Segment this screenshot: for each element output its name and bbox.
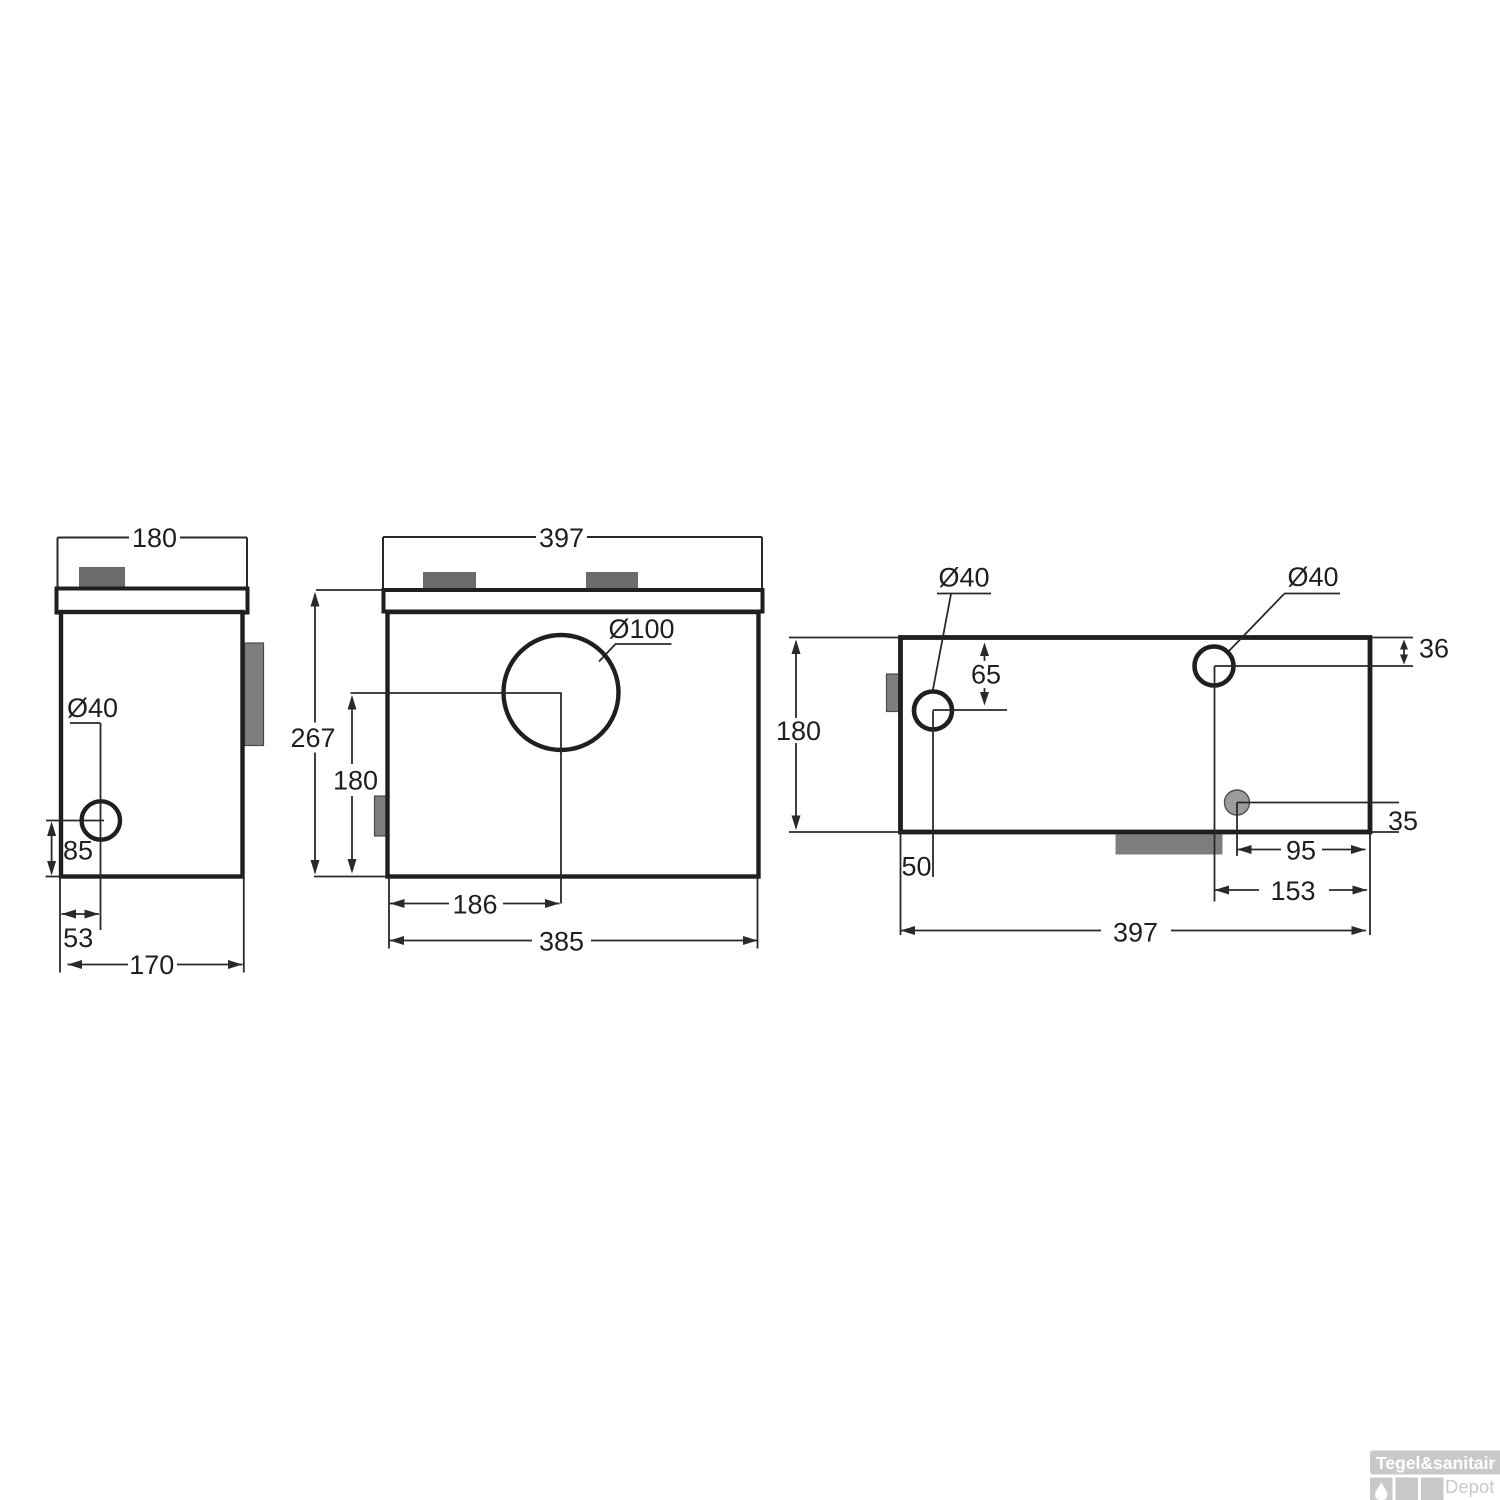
svg-text:Depot: Depot — [1445, 1476, 1494, 1497]
svg-text:Ø40: Ø40 — [1287, 562, 1338, 592]
svg-text:50: 50 — [901, 852, 931, 882]
svg-text:36: 36 — [1419, 634, 1449, 664]
svg-text:65: 65 — [971, 660, 1001, 690]
svg-text:397: 397 — [1113, 918, 1158, 948]
svg-text:Tegel&sanitair: Tegel&sanitair — [1376, 1453, 1495, 1473]
svg-text:397: 397 — [539, 523, 584, 553]
svg-text:180: 180 — [776, 716, 821, 746]
svg-text:153: 153 — [1270, 876, 1315, 906]
svg-text:Ø100: Ø100 — [608, 614, 674, 644]
svg-text:170: 170 — [129, 950, 174, 980]
svg-text:95: 95 — [1286, 836, 1316, 866]
svg-text:35: 35 — [1388, 806, 1418, 836]
svg-text:85: 85 — [63, 836, 93, 866]
svg-text:53: 53 — [63, 923, 93, 953]
svg-text:267: 267 — [290, 723, 335, 753]
svg-text:180: 180 — [333, 766, 378, 796]
svg-text:Ø40: Ø40 — [938, 563, 989, 593]
svg-text:385: 385 — [539, 927, 584, 957]
svg-text:180: 180 — [132, 523, 177, 553]
svg-text:186: 186 — [452, 890, 497, 920]
svg-text:Ø40: Ø40 — [67, 693, 118, 723]
